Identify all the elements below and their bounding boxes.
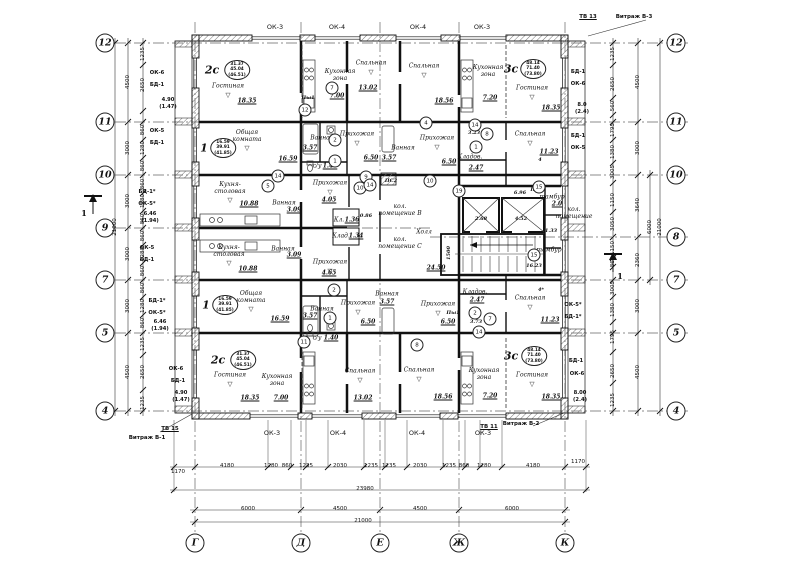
callout-circle: 1 (324, 312, 337, 325)
side-label: 8.00 (574, 390, 587, 396)
axis-circle-5: 5 (667, 324, 686, 343)
side-label: ОК-6 (150, 70, 164, 76)
room-area: 3.09 (287, 207, 302, 214)
dimension-label: 860 (140, 318, 146, 329)
room-name: Кухонная зона (473, 64, 504, 78)
glazing-label: ТВ 15 (161, 426, 179, 432)
room-name: Гостиная (212, 83, 244, 90)
axis-circle-12: 12 (667, 34, 686, 53)
room-area: 7.00 (274, 395, 289, 402)
room-area: 7.20 (483, 95, 498, 102)
small-label: 2.68 (475, 216, 487, 222)
room-area: 11.23 (541, 317, 560, 324)
dimension-label: 6000 (505, 506, 519, 512)
section-mark-label: 1 (617, 271, 623, 281)
dimension-label: 860 (459, 463, 470, 469)
room-marker-icon: ▽ (436, 309, 441, 317)
room-name: Кухонная зона (325, 68, 356, 82)
room-name: Прихожая (421, 301, 455, 308)
dimension-label: 1235 (442, 463, 456, 469)
dimension-label: 3005 (610, 165, 616, 179)
apartment-id: 3с (504, 350, 518, 363)
side-label: БД-1* (148, 298, 165, 304)
apartment-id: 1 (200, 142, 208, 155)
room-name: с/у (313, 163, 322, 170)
dimension-label: 4180 (220, 463, 234, 469)
room-name: Прихожая (341, 300, 375, 307)
callout-circle: 2 (328, 284, 341, 297)
small-label: 0.86 (360, 213, 372, 219)
axis-circle-К: К (556, 534, 575, 553)
glazing-label: Витраж В-2 (503, 421, 540, 427)
side-label: 4.90 (175, 390, 188, 396)
callout-circle: 1 (470, 141, 483, 154)
small-label: 6.96 (514, 190, 526, 196)
axis-circle-12: 12 (96, 34, 115, 53)
room-name: Кладов. (463, 289, 488, 296)
dimension-label: 1795 (610, 123, 616, 137)
room-area: 3.57 (303, 313, 318, 320)
plan-labels: 1 1 12111097541211108754ГДЕЖКОК-3ОК-4ОК-… (0, 0, 800, 565)
room-marker-icon: ▽ (245, 144, 250, 152)
room-name: Ванная (272, 200, 295, 207)
window-label: ОК-3 (474, 23, 490, 31)
small-label: Пы1 (301, 95, 314, 101)
dimension-label: 1235 (610, 393, 616, 407)
dimension-label: 2030 (413, 463, 427, 469)
callout-circle: 2 (329, 134, 342, 147)
apartment-areas-stamp: 31.3745.04(46.51) (224, 60, 250, 80)
room-area: 16.59 (271, 316, 290, 323)
dimension-label: 1150 (610, 193, 616, 207)
dimension-label: 1235 (299, 463, 313, 469)
side-label: ОК-6 (570, 371, 584, 377)
side-label: ОК-6 (169, 366, 183, 372)
dimension-label: 1235 (382, 463, 396, 469)
apartment-id: 2с (205, 64, 219, 77)
callout-circle: 14 (469, 119, 482, 132)
axis-circle-Д: Д (292, 534, 311, 553)
room-marker-icon: ▽ (528, 139, 533, 147)
small-label: 4* (538, 287, 544, 293)
dimension-label: 6000 (241, 506, 255, 512)
room-area: 18.56 (434, 394, 453, 401)
room-area: 24.50 (427, 265, 446, 272)
room-area: 4.05 (322, 197, 337, 204)
callout-circle: 8 (411, 339, 424, 352)
dimension-label: 3000 (125, 141, 131, 155)
dimension-label: 1380 (610, 145, 616, 159)
room-area: 6.50 (364, 155, 379, 162)
axis-circle-4: 4 (667, 402, 686, 421)
dimension-label: 1150 (610, 241, 616, 255)
side-label: ОК-5 (571, 145, 585, 151)
dimension-label: 2650 (610, 77, 616, 91)
callout-circle: 10 (424, 175, 437, 188)
room-area: 2.47 (470, 297, 485, 304)
room-marker-icon: ▽ (528, 303, 533, 311)
dimension-label: 860 (140, 214, 146, 225)
callout-circle: 1 (329, 155, 342, 168)
callout-circle: 15 (533, 181, 546, 194)
dimension-label: 1280 (264, 463, 278, 469)
axis-circle-10: 10 (667, 166, 686, 185)
axis-circle-5: 5 (96, 324, 115, 343)
dimension-label: 1170 (171, 469, 185, 475)
callout-circle: 14 (272, 170, 285, 183)
room-marker-icon: ▽ (422, 71, 427, 79)
dimension-label: 4500 (125, 75, 131, 89)
window-label: ОК-4 (329, 23, 345, 31)
dimension-label: 4500 (635, 75, 641, 89)
apartment-areas-stamp: 31.3745.04(46.51) (230, 350, 256, 370)
dimension-label: 2360 (635, 253, 641, 267)
room-area: 3.09 (287, 252, 302, 259)
dimension-label: 3000 (635, 141, 641, 155)
room-marker-icon: ▽ (228, 380, 233, 388)
dimension-label: 3000 (125, 299, 131, 313)
side-label: 8.0 (577, 102, 586, 108)
dimension-label: 1280 (477, 463, 491, 469)
room-marker-icon: ▽ (249, 305, 254, 313)
dimension-label: 860 (282, 463, 293, 469)
side-label: ОК-5 (150, 128, 164, 134)
side-label: (1.47) (172, 397, 190, 403)
dimension-label: 2030 (333, 463, 347, 469)
side-label: ОК-6 (571, 81, 585, 87)
dimension-label: 4500 (125, 365, 131, 379)
dimension-label: 3000 (125, 247, 131, 261)
room-name: Кухня- столовая (213, 244, 244, 258)
window-label: ОК-3 (475, 429, 491, 437)
dimension-label: 860 (140, 231, 146, 242)
dimension-label: 860 (140, 161, 146, 172)
room-name: Спальная (404, 367, 435, 374)
dimension-label: 1235 (140, 47, 146, 61)
dimension-label: 3005 (610, 281, 616, 295)
room-area: 6.50 (361, 319, 376, 326)
floor-plan-drawing: 1 1 12111097541211108754ГДЕЖКОК-3ОК-4ОК-… (0, 0, 800, 565)
room-area: 2.47 (469, 165, 484, 172)
room-marker-icon: ▽ (228, 196, 233, 204)
small-label: 3.73 (470, 319, 482, 325)
apartment-id: 3с (504, 63, 518, 76)
callout-circle: 15 (528, 249, 541, 262)
room-name: Гостиная (516, 372, 548, 379)
apartment-id: 2с (211, 354, 225, 367)
side-label: БД-1 (171, 378, 185, 384)
room-name: кол. помещение С (378, 236, 421, 250)
glazing-label: ТВ 13 (579, 14, 597, 20)
axis-circle-4: 4 (96, 402, 115, 421)
dimension-label: 1235 (610, 47, 616, 61)
callout-circle: 14 (364, 179, 377, 192)
window-label: ОК-3 (267, 23, 283, 31)
room-marker-icon: ▽ (435, 143, 440, 151)
dimension-label: 3050 (610, 217, 616, 231)
room-marker-icon: ▽ (227, 259, 232, 267)
room-name: Спальная (515, 295, 546, 302)
dimension-label: 1170 (571, 459, 585, 465)
room-name: Прихожая (313, 259, 347, 266)
room-marker-icon: ▽ (358, 376, 363, 384)
dimension-label: 4500 (413, 506, 427, 512)
side-label: БД-1 (569, 358, 583, 364)
side-label: БД-1 (150, 140, 164, 146)
dimension-label: 4500 (635, 365, 641, 379)
axis-circle-10: 10 (96, 166, 115, 185)
room-name: Кл. (334, 217, 344, 224)
small-label: 4.52 (515, 216, 527, 222)
room-name: Кухонная зона (469, 367, 500, 381)
callout-circle: 8 (481, 128, 494, 141)
dimension-label: 560 (610, 101, 616, 112)
side-label: БД-1* (564, 314, 581, 320)
room-area: 13.02 (354, 395, 373, 402)
dimension-label: 6000 (647, 220, 653, 234)
room-name: кол. помещение (556, 206, 593, 220)
dimension-label: 860 (140, 179, 146, 190)
room-area: 6.50 (441, 319, 456, 326)
room-name: Кухонная зона (262, 373, 293, 387)
room-marker-icon: ▽ (417, 375, 422, 383)
room-name: Общая комната (233, 129, 262, 143)
room-name: Кухня- столовая (214, 181, 245, 195)
axis-circle-Ж: Ж (450, 534, 469, 553)
small-label: Пы1 (446, 310, 459, 316)
side-label: (1.94) (151, 326, 169, 332)
room-area: 6.50 (442, 159, 457, 166)
callout-circle: 19 (453, 185, 466, 198)
dimension-label: 860 (140, 125, 146, 136)
room-marker-icon: ▽ (328, 188, 333, 196)
apartment-id: 1 (202, 299, 210, 312)
axis-circle-11: 11 (667, 113, 686, 132)
room-area: 18.35 (542, 105, 561, 112)
dimension-label: 21000 (112, 218, 118, 236)
dimension-label: 4500 (333, 506, 347, 512)
room-name: Прихожая (313, 180, 347, 187)
dimension-label: 865 (610, 257, 616, 268)
callout-circle: 7 (326, 82, 339, 95)
callout-circle: 2 (469, 307, 482, 320)
small-label: 1500 (446, 246, 452, 260)
dimension-label: 21000 (354, 518, 372, 524)
section-mark-label: 1 (81, 208, 87, 218)
room-name: Спальная (345, 368, 376, 375)
dimension-label: 1280 (140, 247, 146, 261)
room-name: Спальная (356, 60, 387, 67)
side-label: ОК-5* (564, 302, 581, 308)
window-label: ОК-4 (410, 23, 426, 31)
room-area: 3.57 (382, 155, 397, 162)
window-label: ОК-3 (264, 429, 280, 437)
dimension-label: 23980 (356, 486, 374, 492)
dimension-label: 1380 (610, 303, 616, 317)
glazing-label: ТВ 11 (480, 424, 498, 430)
dimension-label: 2650 (610, 364, 616, 378)
room-marker-icon: ▽ (356, 308, 361, 316)
side-label: ОК-5* (148, 310, 165, 316)
room-area: 18.35 (542, 394, 561, 401)
side-label: (1.47) (159, 104, 177, 110)
room-area: 10.88 (240, 201, 259, 208)
dimension-label: 4180 (526, 463, 540, 469)
side-label: (2.4) (573, 397, 587, 403)
room-area: 1.40 (324, 335, 339, 342)
room-name: Общая комната (237, 290, 266, 304)
room-area: 4.65 (322, 270, 337, 277)
room-marker-icon: ▽ (369, 68, 374, 76)
dimension-label: 3000 (635, 299, 641, 313)
window-label: ОК-4 (330, 429, 346, 437)
callout-circle: 12 (299, 104, 312, 117)
dimension-label: 860 (140, 283, 146, 294)
small-label: 1.33 (545, 228, 557, 234)
side-label: (2.4) (575, 109, 589, 115)
room-name: кол. помещение В (378, 203, 421, 217)
callout-circle: 7 (484, 313, 497, 326)
dimension-label: 1795 (610, 330, 616, 344)
axis-circle-11: 11 (96, 113, 115, 132)
room-area: 3.57 (380, 299, 395, 306)
apartment-areas-stamp: 48.1471.40(73.80) (521, 346, 547, 366)
room-area: 11.23 (540, 149, 559, 156)
room-area: 10.88 (239, 266, 258, 273)
side-label: БД-1 (571, 133, 585, 139)
room-name: Прихожая (420, 135, 454, 142)
room-name: Прихожая (340, 131, 374, 138)
room-area: 16.59 (279, 156, 298, 163)
dimension-label: 3640 (635, 198, 641, 212)
axis-circle-7: 7 (667, 271, 686, 290)
room-name: Холл (416, 229, 432, 236)
axis-circle-7: 7 (96, 271, 115, 290)
callout-circle: 4 (420, 117, 433, 130)
room-area: 18.35 (238, 98, 257, 105)
dimension-label: 1280 (140, 194, 146, 208)
callout-circle: 14 (473, 326, 486, 339)
side-label: БД-1 (150, 82, 164, 88)
room-marker-icon: ▽ (530, 93, 535, 101)
dimension-label: 1235 (364, 463, 378, 469)
side-label: 4.90 (162, 97, 175, 103)
room-area: 13.02 (359, 85, 378, 92)
room-area: 1.36 (345, 217, 360, 224)
dimension-label: 1235 (140, 337, 146, 351)
apartment-areas-stamp: 16.5939.91(41.85) (212, 295, 238, 315)
axis-circle-Е: Е (371, 534, 390, 553)
small-label: ПС2 (385, 178, 397, 184)
room-marker-icon: ▽ (530, 380, 535, 388)
apartment-areas-stamp: 48.1471.40(73.80) (520, 59, 546, 79)
room-area: 3.57 (303, 145, 318, 152)
side-label: 6.46 (154, 319, 167, 325)
room-area: 7.20 (483, 393, 498, 400)
dimension-label: 21000 (657, 218, 663, 236)
room-area: 1.34 (349, 233, 364, 240)
room-area: 18.56 (435, 98, 454, 105)
room-name: с/у (313, 335, 322, 342)
dimension-label: 1280 (140, 141, 146, 155)
room-name: Гостиная (214, 372, 246, 379)
room-name: Кладов. (458, 154, 483, 161)
room-name: Спальная (515, 131, 546, 138)
room-name: Спальная (409, 63, 440, 70)
room-marker-icon: ▽ (355, 139, 360, 147)
room-name: тамбур (539, 194, 564, 201)
room-name: Ванная (375, 291, 398, 298)
dimension-label: 1235 (140, 396, 146, 410)
small-label: 4 (538, 157, 541, 163)
small-label: 16.23 (526, 263, 542, 269)
dimension-label: 860 (140, 266, 146, 277)
room-area: 18.35 (241, 395, 260, 402)
callout-circle: 5 (262, 180, 275, 193)
room-name: Клад. (332, 233, 350, 240)
glazing-label: Витраж В-3 (616, 14, 653, 20)
dimension-label: 1280 (140, 299, 146, 313)
callout-circle: 11 (298, 336, 311, 349)
dimension-label: 3000 (125, 194, 131, 208)
dimension-label: 2650 (140, 78, 146, 92)
room-name: Гостиная (516, 85, 548, 92)
side-label: БД-1 (571, 69, 585, 75)
axis-circle-8: 8 (667, 228, 686, 247)
room-name: Ванная (391, 145, 414, 152)
glazing-label: Витраж В-1 (129, 435, 166, 441)
dimension-label: 2650 (140, 365, 146, 379)
room-marker-icon: ▽ (226, 91, 231, 99)
window-label: ОК-4 (409, 429, 425, 437)
axis-circle-Г: Г (186, 534, 205, 553)
